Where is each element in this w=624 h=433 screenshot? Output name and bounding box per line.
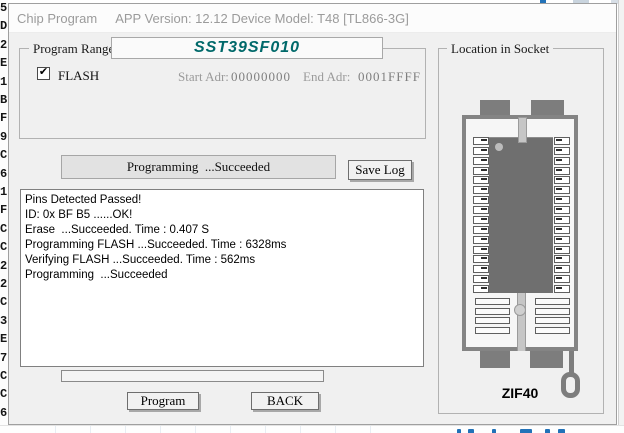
screen: { "window": { "title_left": "Chip Progra… — [0, 0, 624, 433]
socket-pin — [473, 176, 489, 184]
socket-graphic: ZIF40 — [439, 49, 605, 415]
background-hex-char: D — [0, 19, 8, 33]
progress-bar — [61, 370, 324, 382]
occluded-text-fragment — [492, 429, 496, 433]
socket-pin — [554, 216, 570, 224]
occluded-text-fragment — [520, 429, 532, 433]
chip-program-dialog: Chip Program APP Version: 12.12 Device M… — [8, 3, 617, 425]
pin1-indicator-dot — [495, 143, 503, 151]
socket-bottom-tab — [530, 351, 563, 368]
socket-pin — [554, 265, 570, 273]
log-line: Pins Detected Passed! — [25, 193, 423, 208]
background-hex-char: 6 — [0, 167, 8, 181]
socket-pin — [554, 236, 570, 244]
occluded-text-fragment — [468, 429, 474, 433]
socket-pin — [554, 226, 570, 234]
background-hex-char: C — [0, 222, 8, 236]
socket-pin — [473, 246, 489, 254]
chip-name: SST39SF010 — [194, 39, 300, 57]
socket-pin — [554, 206, 570, 214]
socket-pin — [473, 275, 489, 283]
background-hex-char: E — [0, 56, 8, 70]
socket-slot — [535, 308, 570, 315]
background-hex-char: 1 — [0, 75, 8, 89]
background-window-sliver — [618, 0, 624, 433]
flash-checkbox-label: FLASH — [58, 68, 99, 84]
socket-pin — [473, 255, 489, 263]
socket-top-tab — [480, 100, 510, 116]
socket-pin — [473, 226, 489, 234]
status-bar: Programming ...Succeeded — [61, 155, 336, 179]
background-window-bottom — [0, 425, 624, 433]
program-button[interactable]: Program — [127, 392, 199, 410]
background-hex-char: C — [0, 387, 8, 401]
socket-type-label: ZIF40 — [462, 385, 578, 401]
socket-pin — [473, 167, 489, 175]
background-hex-char: 3 — [0, 314, 8, 328]
socket-slot — [475, 308, 510, 315]
chip-name-box: SST39SF010 — [111, 37, 383, 59]
end-adr-value: 0001FFFF — [358, 69, 421, 85]
socket-pin — [473, 206, 489, 214]
log-line: Verifying FLASH ...Succeeded. Time : 562… — [25, 253, 423, 268]
window-title: Chip Program — [17, 11, 97, 26]
background-hex-char: C — [0, 148, 8, 162]
flash-checkbox[interactable]: ✔ — [37, 67, 50, 80]
back-button-label: BACK — [267, 393, 303, 409]
window-subtitle: APP Version: 12.12 Device Model: T48 [TL… — [115, 11, 409, 26]
background-hex-char: 2 — [0, 38, 8, 52]
background-hex-char: F — [0, 203, 8, 217]
socket-bottom-tab — [480, 351, 510, 368]
socket-center-screw — [514, 304, 526, 316]
background-hex-column: 5D2E1BF9C61FCC22C3E7CC68 — [0, 0, 8, 433]
log-line: Programming ...Succeeded — [25, 268, 423, 283]
status-message: Programming ...Succeeded — [127, 159, 270, 175]
socket-pin — [473, 285, 489, 293]
background-hex-char: 9 — [0, 130, 8, 144]
socket-pin — [473, 157, 489, 165]
program-range-label: Program Range — [29, 41, 118, 56]
program-button-label: Program — [141, 393, 186, 409]
background-hex-char: C — [0, 295, 8, 309]
socket-pin — [473, 216, 489, 224]
socket-slot — [535, 327, 570, 334]
socket-slot — [475, 327, 510, 334]
socket-pin — [473, 147, 489, 155]
socket-lever-shaft — [517, 293, 526, 351]
start-adr-value: 00000000 — [231, 69, 291, 85]
socket-slot — [535, 298, 570, 305]
save-log-button[interactable]: Save Log — [348, 160, 412, 180]
log-line: Erase ...Succeeded. Time : 0.407 S — [25, 223, 423, 238]
socket-pin — [554, 147, 570, 155]
socket-pin — [473, 196, 489, 204]
socket-pin — [554, 157, 570, 165]
background-hex-char: F — [0, 111, 8, 125]
background-hex-char: 2 — [0, 259, 8, 273]
background-hex-char: C — [0, 240, 8, 254]
background-hex-char: E — [0, 332, 8, 346]
background-hex-char: 7 — [0, 351, 8, 365]
socket-slot — [535, 317, 570, 324]
location-in-socket-group: Location in Socket ZIF40 — [438, 48, 604, 414]
socket-pin — [473, 137, 489, 145]
socket-pin — [554, 196, 570, 204]
log-area[interactable]: Pins Detected Passed!ID: 0x BF B5 ......… — [20, 189, 424, 367]
start-adr-label: Start Adr: — [178, 69, 229, 85]
socket-lever-top — [518, 117, 527, 143]
socket-pin — [554, 275, 570, 283]
background-hex-char: 6 — [0, 406, 8, 420]
program-range-group: Program Range — [19, 48, 426, 139]
socket-pin — [554, 176, 570, 184]
socket-pin — [473, 186, 489, 194]
background-hex-char: 2 — [0, 277, 8, 291]
back-button[interactable]: BACK — [251, 392, 319, 410]
socket-pin — [554, 246, 570, 254]
background-hex-char: 1 — [0, 185, 8, 199]
end-adr-label: End Adr: — [303, 69, 350, 85]
background-hex-char: B — [0, 93, 8, 107]
socket-pin — [554, 255, 570, 263]
socket-slot — [475, 317, 510, 324]
socket-pin — [554, 167, 570, 175]
log-line: ID: 0x BF B5 ......OK! — [25, 208, 423, 223]
socket-pin — [554, 137, 570, 145]
occluded-text-fragment — [558, 429, 565, 433]
inserted-chip — [489, 137, 553, 293]
occluded-text-fragment — [545, 429, 550, 433]
socket-top-tab — [531, 100, 564, 116]
occluded-text-fragment — [457, 429, 461, 433]
background-hex-char: C — [0, 369, 8, 383]
background-hex-char: 5 — [0, 1, 8, 15]
log-line: Programming FLASH ...Succeeded. Time : 6… — [25, 238, 423, 253]
socket-pin — [554, 285, 570, 293]
socket-pin — [473, 265, 489, 273]
save-log-label: Save Log — [355, 162, 404, 178]
socket-pin — [554, 186, 570, 194]
socket-pin — [473, 236, 489, 244]
title-bar: Chip Program APP Version: 12.12 Device M… — [9, 4, 616, 33]
checkbox-check-icon: ✔ — [39, 67, 48, 78]
socket-slot — [475, 298, 510, 305]
